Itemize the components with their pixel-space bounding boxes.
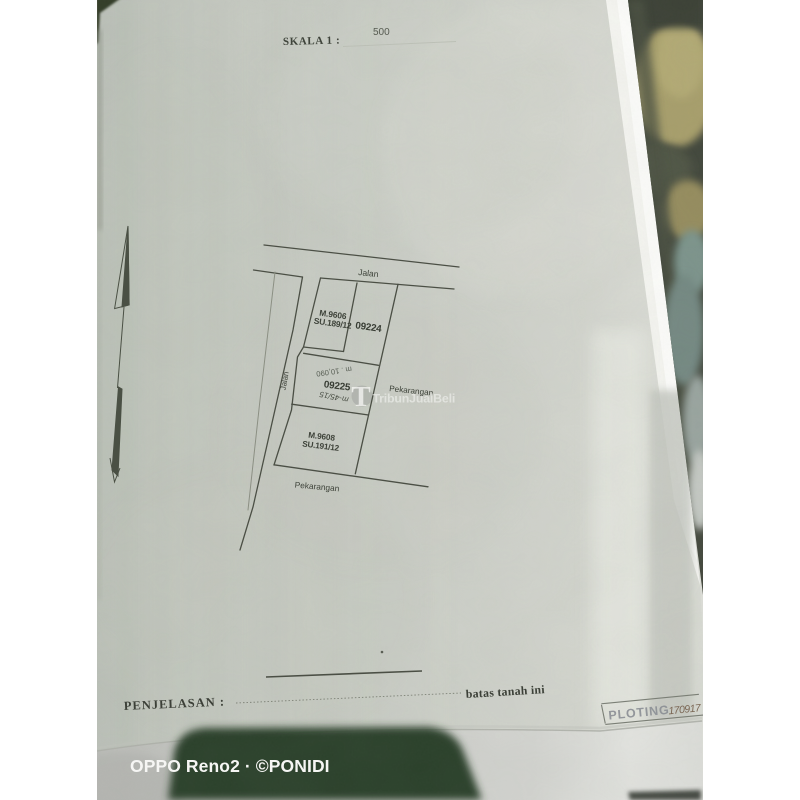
- svg-text:500: 500: [373, 27, 390, 38]
- svg-text:Jalan: Jalan: [358, 267, 380, 279]
- svg-text:TribunJualBeli: TribunJualBeli: [373, 392, 456, 406]
- svg-text:OPPO Reno2 · ©PONIDI: OPPO Reno2 · ©PONIDI: [130, 756, 330, 776]
- svg-text:SKALA 1 :: SKALA 1 :: [283, 35, 341, 48]
- svg-text:T: T: [351, 381, 370, 413]
